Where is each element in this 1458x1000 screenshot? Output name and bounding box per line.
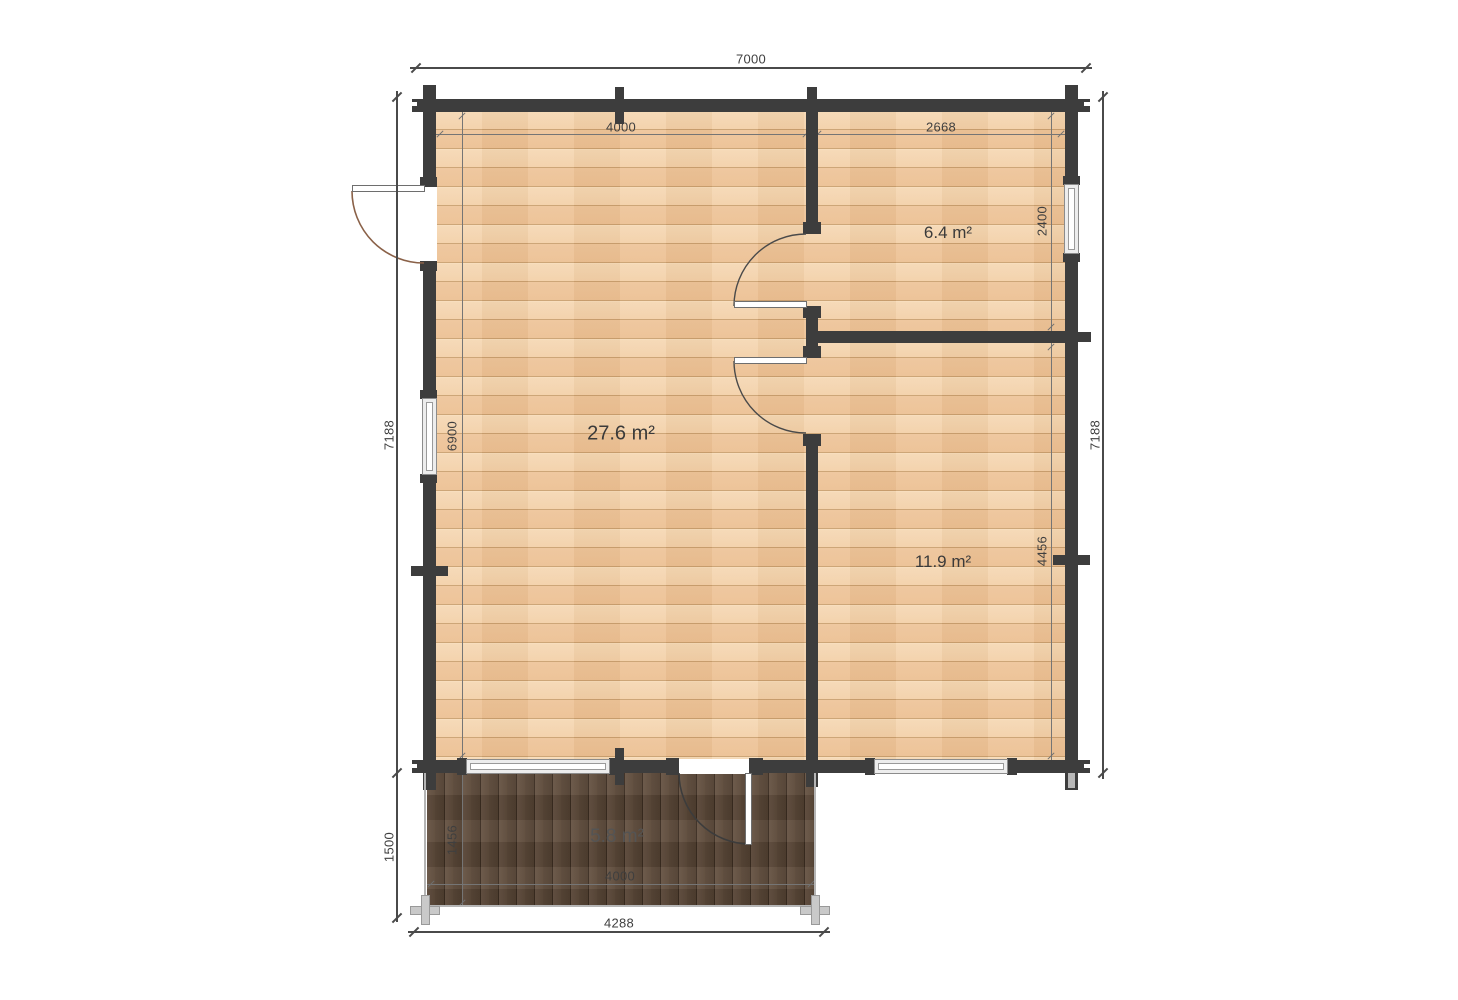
log-stub	[615, 87, 624, 99]
dim-terrace-width-overall: 4288	[604, 917, 634, 930]
dim-right-overall-depth: 7188	[1089, 420, 1102, 450]
dim-line-terrace-width	[427, 884, 815, 885]
dim-line-interior-depth	[462, 112, 463, 760]
log-stub	[806, 773, 818, 787]
floor-plan: 7000 4000 2668 2400 7188 7188 6900 4456 …	[0, 0, 1458, 1000]
window-left-wall	[422, 398, 437, 475]
dim-line-left-depth	[396, 91, 398, 922]
entrance-door-arc	[352, 191, 424, 263]
log-stub	[411, 566, 423, 576]
log-stub	[1078, 555, 1090, 565]
interior-door-leaf-lower	[734, 357, 807, 364]
door-jamb	[803, 222, 821, 234]
dim-room-right-width: 2668	[926, 121, 956, 134]
terrace-edge-left	[424, 773, 426, 913]
dim-line-overall-width	[410, 67, 1092, 69]
log-notch	[405, 764, 417, 768]
main-floor	[436, 112, 1065, 760]
room-area-label-top-right: 6.4 m²	[924, 223, 972, 243]
window-jamb	[1063, 253, 1080, 262]
window-jamb	[609, 758, 619, 775]
wall-interior-horizontal	[818, 331, 1065, 343]
door-opening-terrace	[679, 759, 749, 774]
terrace-post	[811, 895, 820, 925]
dim-left-overall-depth: 7188	[383, 420, 396, 450]
dim-terrace-depth-overall: 1500	[383, 832, 396, 862]
window-jamb	[1007, 758, 1017, 775]
terrace-edge-bottom	[424, 905, 816, 907]
dim-line-terrace-depth	[462, 773, 463, 907]
log-notch	[1084, 102, 1096, 106]
dim-terrace-width-interior: 4000	[605, 870, 635, 883]
window-right-wall	[1064, 184, 1079, 254]
window-bottom-right	[874, 759, 1008, 774]
log-notch	[1084, 764, 1096, 768]
wall-interior-vertical	[806, 112, 818, 232]
dim-line-topright-depth	[1051, 112, 1052, 331]
dim-terrace-depth-interior: 1456	[446, 825, 459, 855]
terrace-post	[421, 895, 430, 925]
dim-bottomright-depth: 4456	[1036, 536, 1049, 566]
room-area-label-terrace: 5.8 m²	[590, 826, 644, 848]
dim-line-bottomright-depth	[1051, 343, 1052, 760]
door-jamb	[420, 261, 437, 271]
dim-interior-depth: 6900	[446, 421, 459, 451]
door-opening-left	[422, 186, 437, 262]
log-stub	[1053, 555, 1065, 565]
wall-interior-vertical	[806, 436, 818, 760]
dim-room-left-width: 4000	[606, 121, 636, 134]
terrace-door-leaf	[745, 773, 752, 845]
room-area-label-living: 27.6 m²	[587, 423, 655, 446]
door-jamb	[803, 434, 821, 446]
interior-door-leaf-upper	[734, 301, 807, 308]
log-stub-gray	[1068, 773, 1075, 788]
terrace-edge-right	[814, 773, 816, 913]
window-glazing	[470, 763, 606, 770]
dim-line-terrace-overall-width	[408, 931, 830, 933]
log-stub	[1078, 332, 1091, 342]
dim-topright-depth: 2400	[1036, 206, 1049, 236]
window-glazing	[1068, 188, 1075, 250]
wall-top	[412, 99, 1090, 112]
log-stub	[807, 87, 817, 99]
door-jamb	[666, 758, 679, 775]
entrance-door-leaf	[352, 185, 425, 192]
window-jamb	[420, 474, 437, 483]
window-glazing	[878, 763, 1004, 770]
room-area-label-bottom-right: 11.9 m²	[915, 552, 971, 572]
window-glazing	[426, 402, 433, 471]
log-notch	[405, 102, 417, 106]
window-bottom-left	[466, 759, 610, 774]
log-stub	[436, 566, 448, 576]
dim-overall-width: 7000	[736, 53, 766, 66]
